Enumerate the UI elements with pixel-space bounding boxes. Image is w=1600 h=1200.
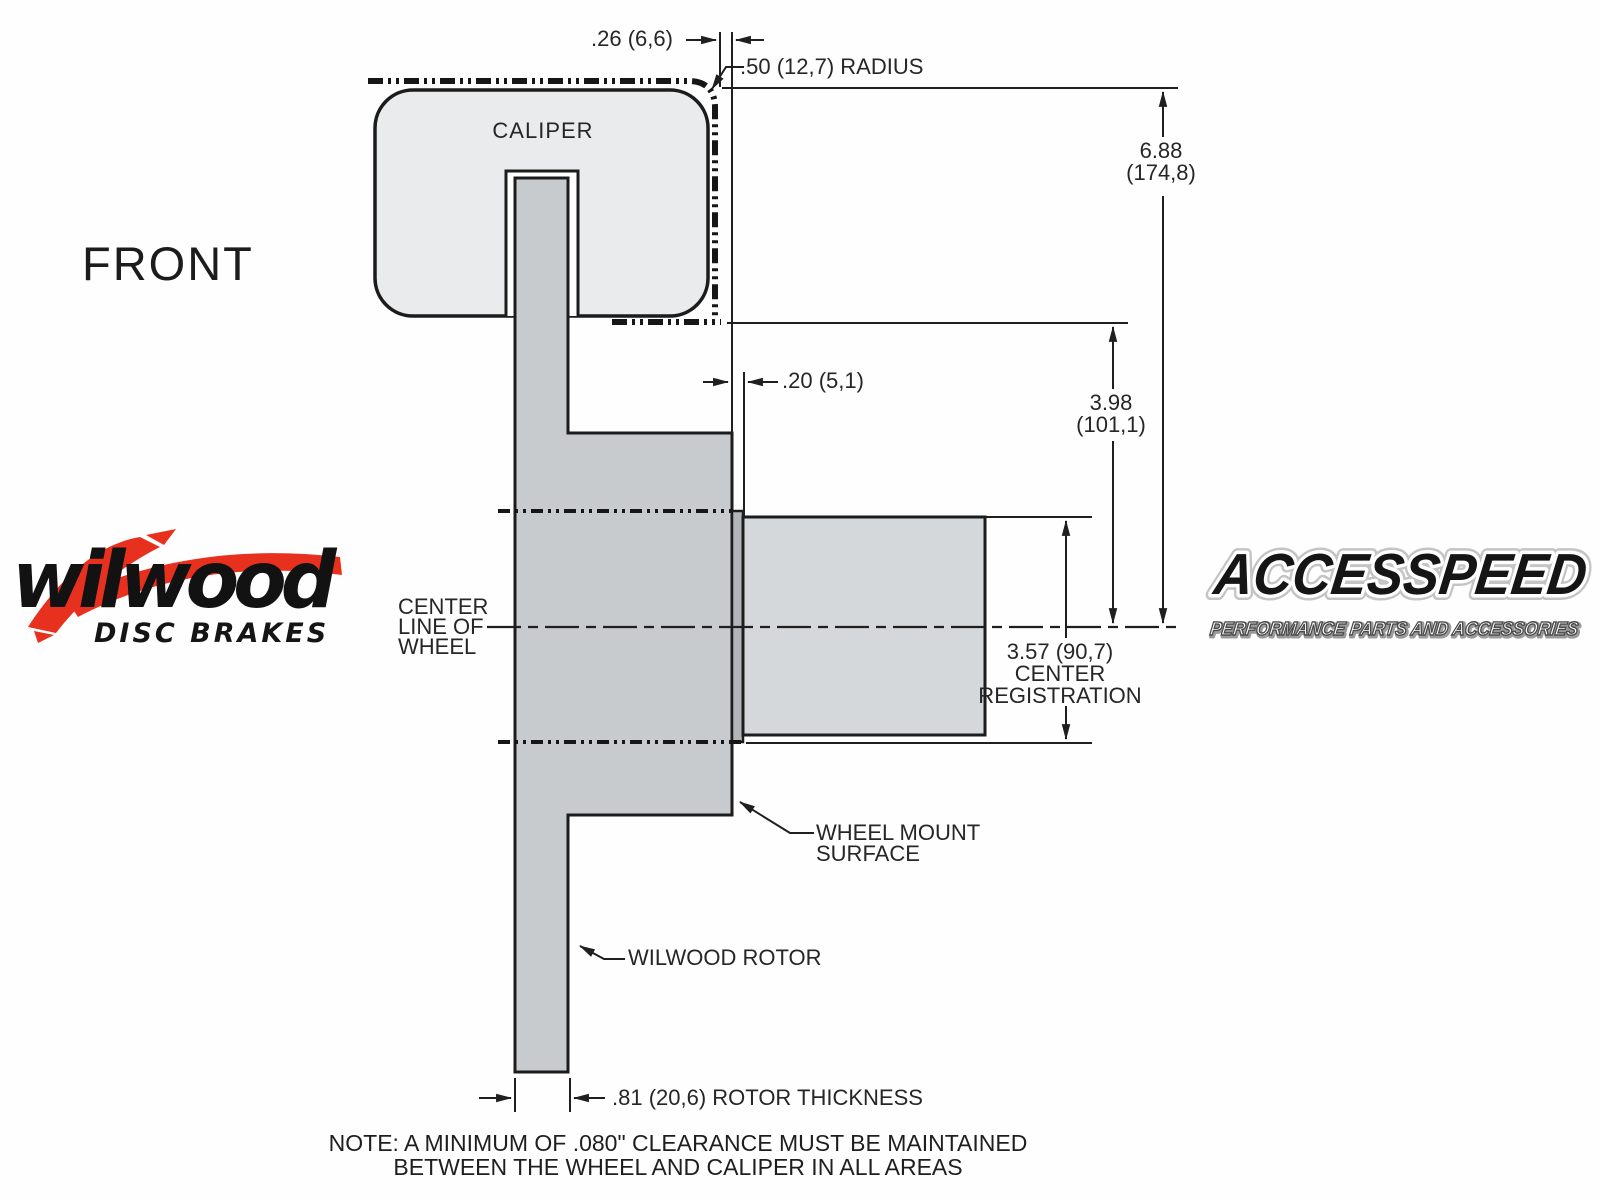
center-line-label-l3: WHEEL — [398, 637, 488, 657]
dim-protrusion-label: .20 (5,1) — [782, 370, 864, 392]
accesspeed-logo: ACCESSPEED ACCESSPEED ACCESSPEED PERFORM… — [1192, 532, 1592, 657]
note-line-2: BETWEEN THE WHEEL AND CALIPER IN ALL ARE… — [329, 1155, 1028, 1179]
wilwood-swoosh-splatter — [34, 631, 54, 643]
dim-registration-line2: CENTER — [978, 663, 1141, 685]
wheel-mount-label-l1: WHEEL MOUNT — [816, 822, 980, 843]
dim-wheel-height-in: 6.88 — [1126, 140, 1196, 162]
dim-inner-height-label: 3.98 (101,1) — [1076, 392, 1146, 436]
view-label: FRONT — [82, 240, 254, 287]
note-block: NOTE: A MINIMUM OF .080" CLEARANCE MUST … — [329, 1131, 1028, 1179]
wheel-mount-label: WHEEL MOUNT SURFACE — [816, 822, 980, 864]
wheel-mount-label-l2: SURFACE — [816, 843, 980, 864]
dim-wheel-height-label: 6.88 (174,8) — [1126, 140, 1196, 184]
dim-inner-height-mm: (101,1) — [1076, 414, 1146, 436]
rotor-leader — [580, 946, 625, 959]
dim-radius-label: .50 (12,7) RADIUS — [740, 56, 923, 78]
wilwood-wordmark: wilwood — [12, 536, 331, 626]
rotor-label: WILWOOD ROTOR — [628, 947, 822, 969]
dim-inner-height-in: 3.98 — [1076, 392, 1146, 414]
center-line-label: CENTER LINE OF WHEEL — [398, 597, 488, 657]
dim-wheel-height-mm: (174,8) — [1126, 162, 1196, 184]
wheel-mount-leader — [740, 802, 814, 833]
note-line-1: NOTE: A MINIMUM OF .080" CLEARANCE MUST … — [329, 1131, 1028, 1155]
accesspeed-tagline: PERFORMANCE PARTS AND ACCESSORIES — [1209, 619, 1580, 640]
dim-registration-value: 3.57 (90,7) — [978, 641, 1141, 663]
wilwood-tagline: DISC BRAKES — [94, 618, 329, 649]
brake-diagram-page: FRONT CALIPER .26 (6,6) .50 (12,7) RADIU… — [0, 0, 1600, 1200]
dim-offset-label: .26 (6,6) — [591, 28, 673, 50]
dim-rotor-thickness-label: .81 (20,6) ROTOR THICKNESS — [612, 1087, 923, 1109]
dim-registration-line3: REGISTRATION — [978, 685, 1141, 707]
accesspeed-wordmark: ACCESSPEED — [1209, 542, 1591, 607]
dim-registration-label: 3.57 (90,7) CENTER REGISTRATION — [978, 641, 1141, 707]
caliper-label: CALIPER — [492, 120, 593, 142]
